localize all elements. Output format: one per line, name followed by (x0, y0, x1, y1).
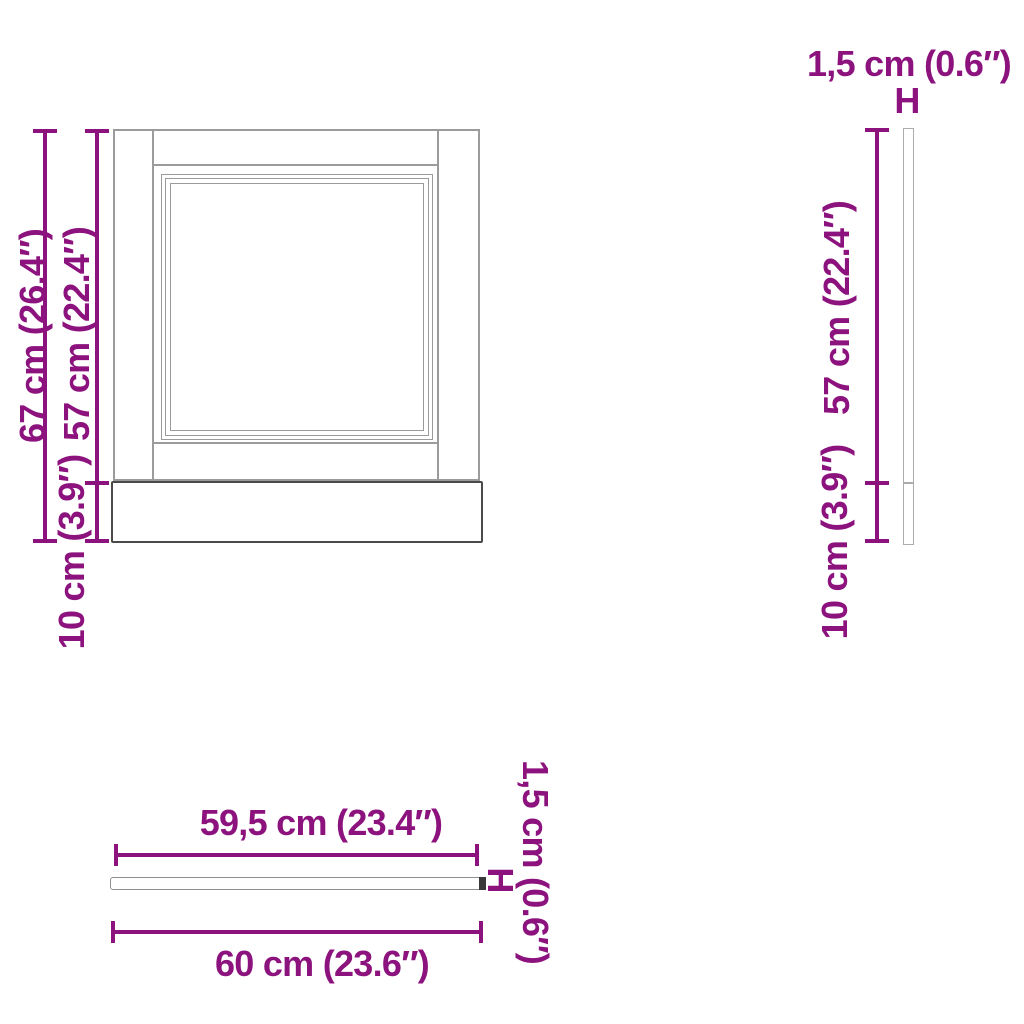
top-inner-width-left-tick (114, 844, 118, 866)
front-plinth-outline (111, 481, 483, 543)
dimension-diagram: 67 cm (26.4″) 57 cm (22.4″) 10 cm (3.9″)… (0, 0, 1024, 1024)
side-height-symbol: H (887, 83, 927, 119)
top-total-width-right-tick (479, 921, 483, 943)
side-thickness-label: 1,5 cm (0.6″) (804, 46, 1014, 82)
top-total-width-label: 60 cm (23.6″) (172, 946, 472, 982)
front-left-stile-line (152, 129, 154, 481)
front-door-height-top-tick (85, 129, 109, 133)
front-panel-moulding-inner (170, 183, 424, 431)
side-plinth-height-label: 10 cm (3.9″) (817, 432, 853, 652)
front-right-stile-line (437, 129, 439, 481)
top-total-width-dim-line (113, 930, 483, 934)
front-plinth-height-label: 10 cm (3.9″) (54, 442, 90, 662)
side-junction-tick (865, 481, 889, 485)
front-total-height-label: 67 cm (26.4″) (15, 186, 51, 486)
top-inner-width-dim-line (116, 853, 477, 857)
top-panel-outline (110, 877, 480, 890)
side-height-top-tick (865, 128, 889, 132)
top-total-width-left-tick (111, 921, 115, 943)
front-bottom-rail-line (153, 442, 438, 444)
side-door-height-label: 57 cm (22.4″) (819, 158, 855, 458)
side-bottom-tick (865, 539, 889, 543)
top-inner-width-right-tick (475, 844, 479, 866)
top-width-symbol: H (482, 860, 518, 900)
front-top-rail-line (153, 164, 438, 166)
front-total-height-top-tick (33, 129, 57, 133)
top-inner-width-label: 59,5 cm (23.4″) (171, 805, 471, 841)
side-panel-seam-line (903, 482, 914, 484)
top-thickness-label: 1,5 cm (0.6″) (517, 752, 553, 972)
front-door-height-label: 57 cm (22.4″) (59, 184, 95, 484)
